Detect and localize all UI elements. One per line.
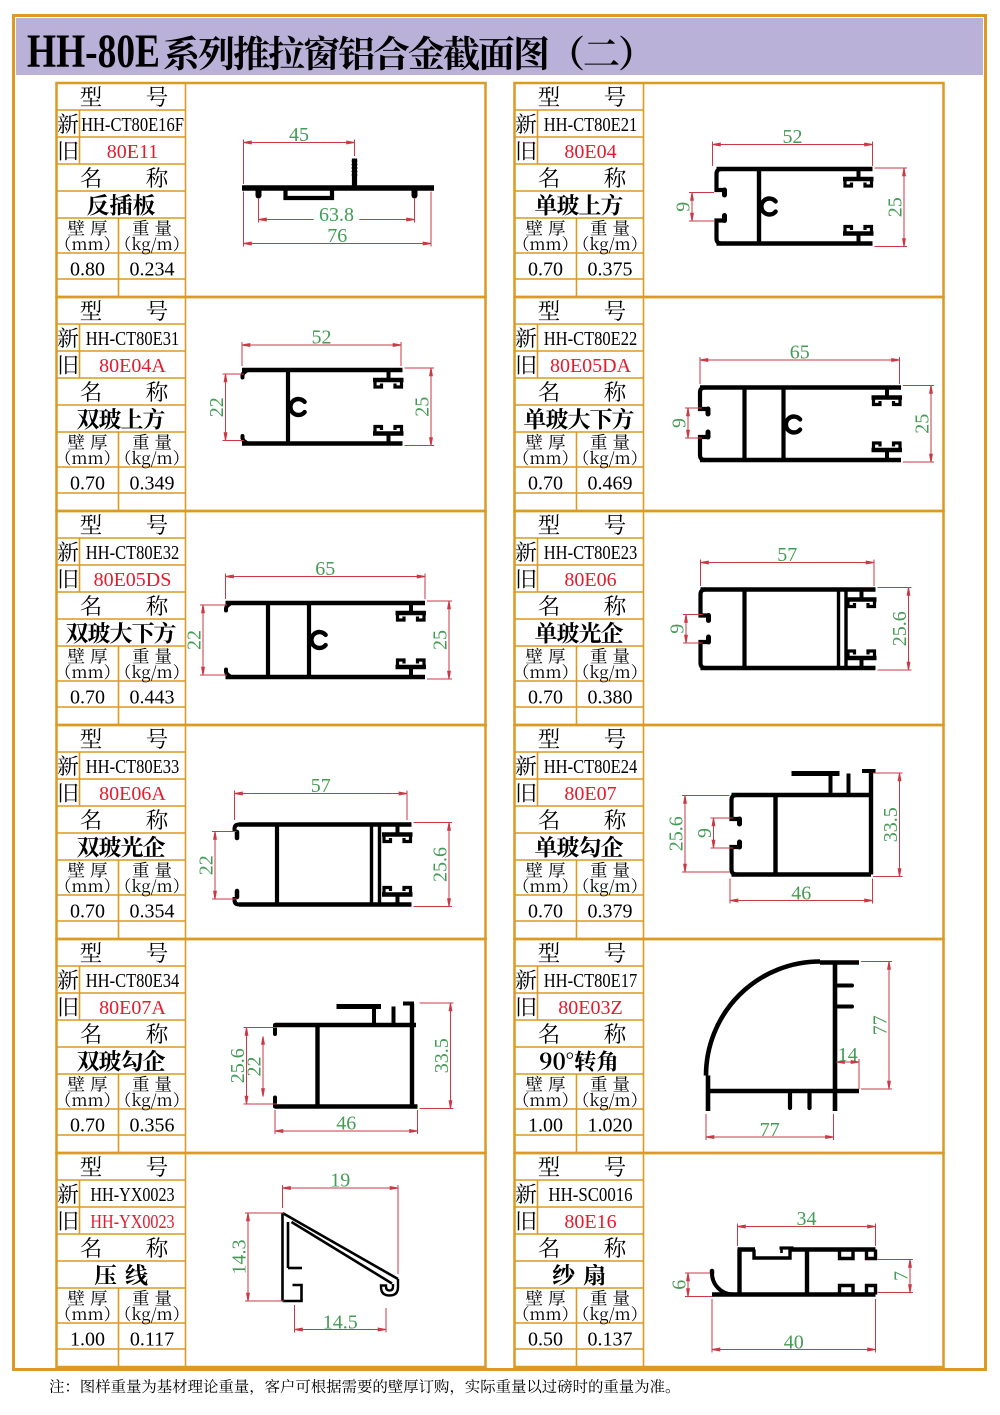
svg-text:HH-CT80E31: HH-CT80E31 — [86, 328, 180, 350]
svg-text:45: 45 — [289, 124, 309, 146]
svg-text:57: 57 — [311, 775, 331, 797]
svg-text:80E04: 80E04 — [564, 141, 616, 163]
svg-text:1.00: 1.00 — [528, 1115, 563, 1137]
svg-text:57: 57 — [777, 544, 797, 566]
svg-text:0.70: 0.70 — [70, 473, 105, 495]
svg-text:0.137: 0.137 — [588, 1329, 633, 1351]
svg-text:HH-CT80E23: HH-CT80E23 — [544, 542, 638, 564]
svg-text:80E05DS: 80E05DS — [94, 569, 172, 591]
svg-text:77: 77 — [760, 1119, 780, 1141]
svg-text:7: 7 — [891, 1271, 913, 1281]
svg-text:0.70: 0.70 — [70, 901, 105, 923]
svg-text:46: 46 — [336, 1113, 356, 1135]
svg-text:80E03Z: 80E03Z — [558, 997, 622, 1019]
svg-text:22: 22 — [244, 1057, 266, 1077]
svg-text:25.6: 25.6 — [666, 816, 688, 851]
svg-text:HH-CT80E17: HH-CT80E17 — [544, 970, 638, 992]
svg-text:65: 65 — [315, 558, 335, 580]
svg-text:77: 77 — [870, 1015, 892, 1035]
svg-text:9: 9 — [669, 418, 691, 428]
svg-text:HH-CT80E24: HH-CT80E24 — [544, 756, 638, 778]
svg-text:0.356: 0.356 — [130, 1115, 175, 1137]
svg-text:9: 9 — [667, 624, 689, 634]
svg-text:14: 14 — [838, 1044, 858, 1066]
svg-text:0.379: 0.379 — [588, 901, 633, 923]
svg-text:76: 76 — [327, 225, 347, 247]
svg-text:1.00: 1.00 — [70, 1329, 105, 1351]
svg-text:46: 46 — [791, 883, 811, 905]
svg-text:80E04A: 80E04A — [99, 355, 166, 377]
svg-text:1.020: 1.020 — [588, 1115, 633, 1137]
svg-text:25.6: 25.6 — [430, 847, 452, 882]
svg-text:33.5: 33.5 — [431, 1038, 453, 1073]
svg-text:80E16: 80E16 — [564, 1211, 616, 1233]
svg-text:25.6: 25.6 — [889, 611, 911, 646]
svg-text:HH-CT80E22: HH-CT80E22 — [544, 328, 638, 350]
svg-text:HH-SC0016: HH-SC0016 — [548, 1184, 632, 1206]
svg-text:80E06: 80E06 — [564, 569, 616, 591]
svg-text:52: 52 — [312, 327, 332, 349]
svg-text:HH-CT80E32: HH-CT80E32 — [86, 542, 180, 564]
svg-text:80E07: 80E07 — [564, 783, 616, 805]
svg-text:0.80: 0.80 — [70, 259, 105, 281]
svg-text:9: 9 — [673, 202, 695, 212]
svg-text:9: 9 — [694, 828, 716, 838]
svg-text:25: 25 — [412, 397, 434, 417]
svg-text:80E05DA: 80E05DA — [550, 355, 632, 377]
svg-text:0.469: 0.469 — [588, 473, 633, 495]
svg-text:22: 22 — [206, 397, 228, 417]
svg-text:HH-CT80E34: HH-CT80E34 — [86, 970, 180, 992]
svg-text:0.375: 0.375 — [588, 259, 633, 281]
svg-text:0.70: 0.70 — [528, 687, 563, 709]
svg-text:25: 25 — [430, 630, 452, 650]
svg-text:33.5: 33.5 — [880, 807, 902, 842]
svg-text:34: 34 — [797, 1208, 817, 1230]
svg-text:65: 65 — [790, 342, 810, 364]
svg-text:0.50: 0.50 — [528, 1329, 563, 1351]
svg-text:0.380: 0.380 — [588, 687, 633, 709]
svg-text:6: 6 — [669, 1280, 691, 1290]
svg-text:HH-YX0023: HH-YX0023 — [90, 1211, 174, 1233]
svg-text:25: 25 — [885, 197, 907, 217]
svg-text:40: 40 — [784, 1332, 804, 1354]
svg-text:22: 22 — [196, 855, 218, 875]
svg-text:0.349: 0.349 — [130, 473, 175, 495]
svg-text:80E06A: 80E06A — [99, 783, 166, 805]
svg-text:0.70: 0.70 — [528, 473, 563, 495]
svg-text:0.443: 0.443 — [130, 687, 175, 709]
svg-text:22: 22 — [184, 630, 206, 650]
svg-text:80E11: 80E11 — [107, 141, 158, 163]
svg-text:14.3: 14.3 — [229, 1240, 251, 1275]
svg-text:0.70: 0.70 — [528, 259, 563, 281]
svg-text:19: 19 — [330, 1170, 350, 1192]
svg-text:25: 25 — [912, 414, 934, 434]
svg-text:0.117: 0.117 — [130, 1329, 174, 1351]
svg-text:0.234: 0.234 — [130, 259, 175, 281]
svg-text:52: 52 — [783, 126, 803, 148]
svg-text:0.70: 0.70 — [528, 901, 563, 923]
svg-text:HH-CT80E16F: HH-CT80E16F — [81, 114, 184, 136]
svg-text:0.354: 0.354 — [130, 901, 175, 923]
svg-text:HH-CT80E21: HH-CT80E21 — [544, 114, 638, 136]
svg-text:80E07A: 80E07A — [99, 997, 166, 1019]
svg-text:0.70: 0.70 — [70, 687, 105, 709]
svg-text:0.70: 0.70 — [70, 1115, 105, 1137]
svg-text:HH-YX0023: HH-YX0023 — [90, 1184, 174, 1206]
svg-text:HH-CT80E33: HH-CT80E33 — [86, 756, 180, 778]
svg-text:14.5: 14.5 — [323, 1312, 358, 1334]
svg-text:63.8: 63.8 — [319, 204, 354, 226]
svg-text:HH-80E: HH-80E — [27, 26, 160, 78]
